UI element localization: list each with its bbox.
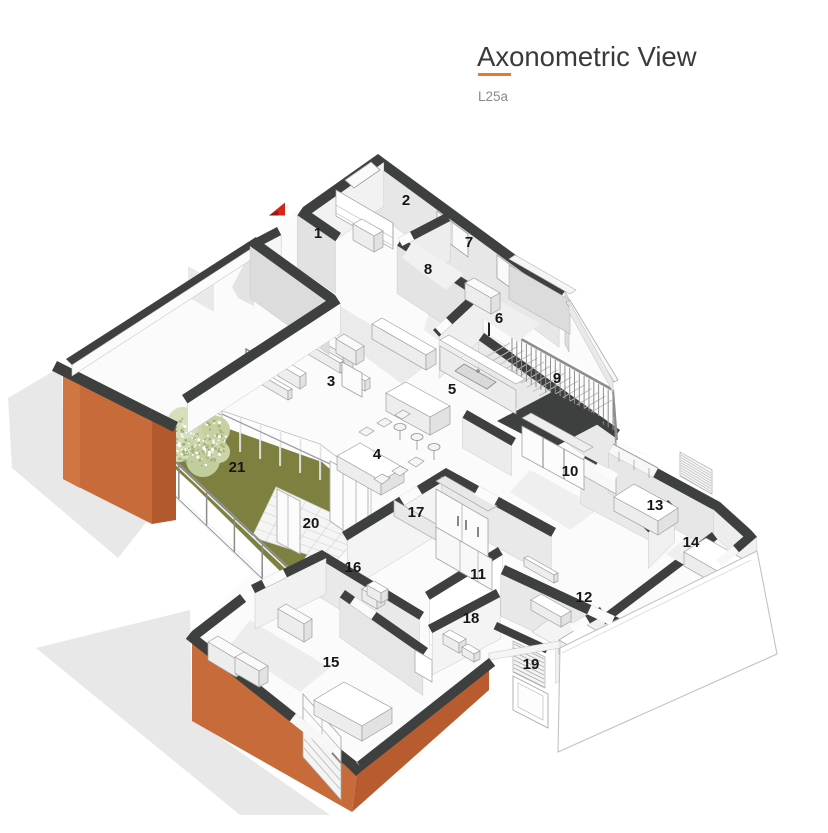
svg-text:4: 4 (373, 446, 382, 463)
svg-text:6: 6 (495, 310, 503, 327)
svg-text:10: 10 (562, 463, 579, 480)
svg-text:13: 13 (647, 497, 664, 514)
svg-text:7: 7 (465, 234, 473, 251)
svg-text:18: 18 (463, 610, 480, 627)
svg-text:L25a: L25a (478, 89, 509, 104)
svg-text:20: 20 (303, 515, 320, 532)
svg-text:9: 9 (553, 370, 561, 387)
svg-text:19: 19 (523, 656, 540, 673)
svg-text:15: 15 (323, 654, 340, 671)
svg-text:12: 12 (576, 589, 593, 606)
svg-text:5: 5 (448, 381, 456, 398)
svg-text:8: 8 (424, 261, 432, 278)
svg-text:3: 3 (327, 373, 335, 390)
svg-text:Axonometric View: Axonometric View (477, 41, 697, 72)
svg-text:14: 14 (683, 534, 700, 551)
svg-text:1: 1 (314, 225, 322, 242)
svg-text:17: 17 (408, 504, 425, 521)
svg-text:21: 21 (229, 459, 246, 476)
svg-text:11: 11 (470, 566, 486, 583)
svg-text:2: 2 (402, 192, 410, 209)
svg-text:16: 16 (345, 559, 362, 576)
